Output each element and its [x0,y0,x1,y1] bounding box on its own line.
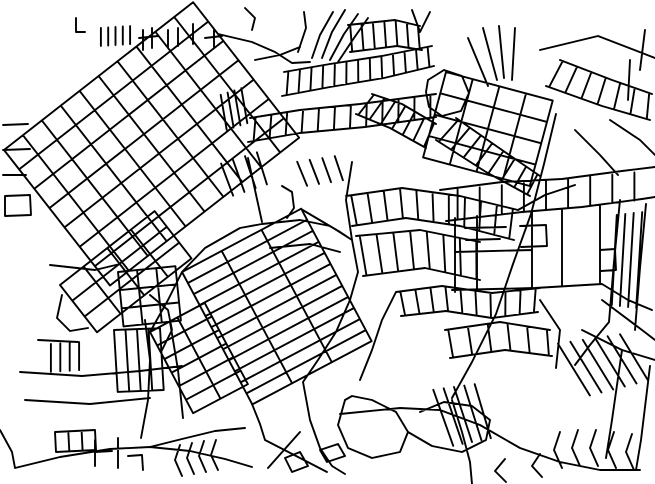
map-canvas [0,0,655,484]
street-network-map [0,0,655,484]
street-lines [0,2,655,484]
